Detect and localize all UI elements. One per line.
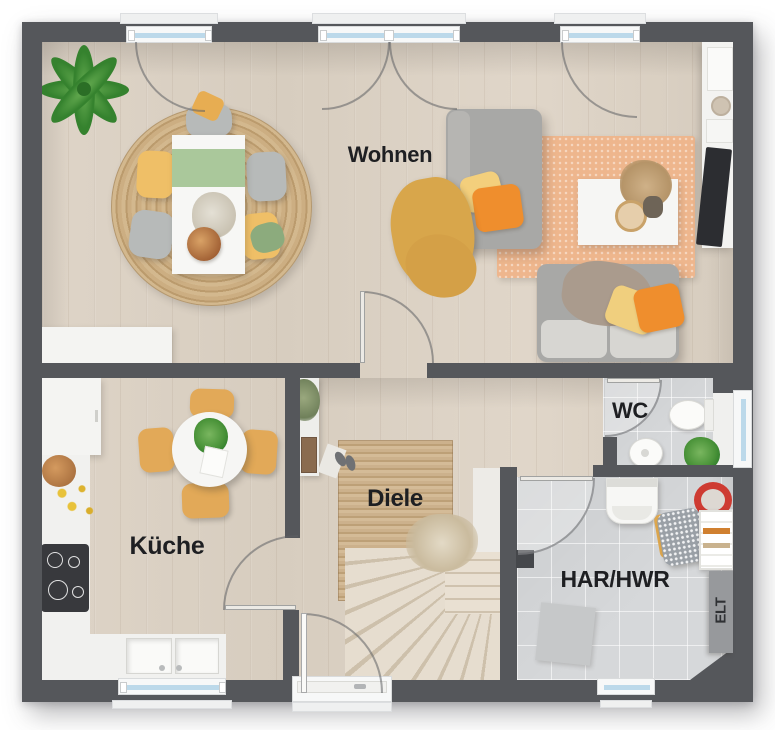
floor-mat	[535, 602, 596, 665]
window-sill	[312, 13, 466, 24]
potted-palm-plant	[38, 46, 130, 134]
palm-center	[77, 82, 91, 96]
vase	[643, 196, 663, 218]
window-glass	[126, 685, 220, 690]
outer-wall-right	[733, 22, 753, 702]
kitchen-window	[118, 678, 226, 695]
floor-plan: Wohnen Küche Diele WC HAR/HWR ELT	[0, 0, 775, 730]
kitchen-wall	[285, 378, 300, 538]
drying-rack	[699, 510, 734, 570]
room-label-hall: Diele	[345, 485, 445, 513]
outer-wall-left	[22, 22, 42, 702]
window-sill	[600, 700, 652, 708]
window-handle	[320, 30, 327, 41]
window-handle	[562, 30, 569, 41]
window-glass	[741, 399, 746, 461]
washer-top-panel	[607, 479, 657, 487]
wc-corner-block	[713, 373, 733, 393]
decor-jar	[711, 96, 731, 116]
dining-chair	[136, 150, 175, 199]
table-runner	[172, 149, 245, 187]
room-label-electrical: ELT	[713, 591, 730, 631]
mid-wall-left	[42, 363, 360, 378]
window	[126, 26, 212, 43]
window	[560, 26, 640, 43]
window-handle	[205, 30, 212, 41]
faucet	[176, 665, 182, 671]
burner	[72, 586, 84, 598]
window-sill	[120, 13, 218, 24]
faucet	[159, 665, 165, 671]
window-mullion	[384, 30, 394, 41]
cabinet-handle	[95, 410, 98, 422]
room-label-living: Wohnen	[340, 142, 440, 168]
room-label-kitchen: Küche	[117, 532, 217, 561]
tall-cabinet	[40, 378, 101, 455]
washer-door	[612, 506, 652, 520]
room-label-utility: HAR/HWR	[545, 566, 685, 593]
cooktop	[41, 544, 89, 612]
door-handle	[354, 684, 366, 689]
seat-cushion	[541, 320, 607, 358]
window-glass	[133, 33, 207, 38]
book-stack	[707, 47, 733, 91]
sideboard	[40, 327, 172, 367]
french-door-window	[318, 26, 460, 43]
dining-chair	[127, 208, 176, 261]
window-handle	[633, 30, 640, 41]
wc-bottom-wall	[593, 465, 733, 477]
window-glass	[567, 33, 635, 38]
kitchen-wall-stub	[283, 610, 299, 680]
wall-switch-box	[516, 550, 534, 568]
utility-left-wall	[500, 467, 517, 680]
door-leaf	[607, 378, 660, 383]
sink-basin	[126, 638, 172, 674]
shelf-books	[301, 437, 317, 473]
window-sill	[112, 700, 232, 709]
towel-on-rack	[703, 543, 730, 548]
door-leaf	[301, 613, 307, 693]
window-handle	[219, 682, 226, 693]
window-handle	[120, 682, 127, 693]
towel-on-rack	[703, 528, 730, 534]
entrance-door-panel	[297, 681, 387, 693]
window-glass	[604, 685, 650, 690]
kitchen-chair	[138, 427, 176, 473]
orange-pillow	[471, 183, 525, 233]
window-handle	[453, 30, 460, 41]
dining-chair	[246, 151, 288, 202]
wc-sink-drain	[641, 449, 649, 457]
door-leaf	[520, 476, 593, 481]
orange-pillow	[632, 282, 686, 335]
burner	[68, 556, 80, 568]
copper-bowl	[187, 227, 221, 261]
door-leaf	[225, 605, 296, 610]
mid-wall-right	[427, 363, 733, 378]
room-label-wc: WC	[600, 398, 660, 424]
door-leaf	[360, 291, 365, 363]
window-sill	[554, 13, 646, 24]
burner	[48, 580, 68, 600]
utility-window	[597, 678, 655, 695]
toilet	[669, 400, 707, 430]
book-stack	[706, 119, 733, 143]
wc-left-stub	[603, 437, 617, 465]
kitchen-chair	[181, 482, 229, 519]
burner	[47, 552, 63, 568]
entrance-step	[292, 702, 392, 712]
toilet-cistern	[704, 399, 714, 431]
window-handle	[128, 30, 135, 41]
wc-window	[733, 390, 752, 468]
yellow-flowers	[52, 480, 102, 524]
